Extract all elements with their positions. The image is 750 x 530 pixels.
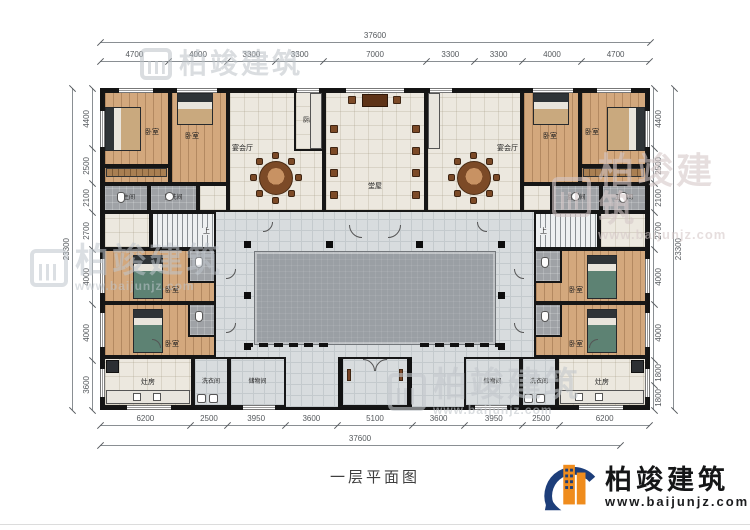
dim-segment: 3300 bbox=[276, 48, 324, 62]
dim-tick bbox=[68, 84, 75, 91]
dim-value: 3300 bbox=[291, 51, 309, 59]
dim-segment: 6200 bbox=[100, 412, 191, 426]
window bbox=[533, 88, 573, 93]
room-label-bedroom: 卧室 bbox=[569, 287, 583, 294]
dim-left-total: 23300 bbox=[59, 88, 73, 410]
bed bbox=[133, 255, 163, 299]
company-name: 柏竣建筑 bbox=[605, 467, 749, 494]
dim-segment: 2500 bbox=[523, 412, 560, 426]
kitchen-counter bbox=[310, 93, 322, 149]
window bbox=[100, 369, 105, 397]
dim-value: 3300 bbox=[441, 51, 459, 59]
room-storage-right: 储物间 bbox=[464, 357, 521, 407]
window bbox=[100, 259, 105, 293]
column bbox=[498, 343, 505, 350]
sheet-edge-line bbox=[0, 524, 750, 525]
dim-segment: 3950 bbox=[227, 412, 285, 426]
toilet bbox=[117, 192, 125, 203]
room-label-bedroom: 卧室 bbox=[185, 133, 199, 140]
room-label-main-hall: 堂屋 bbox=[368, 183, 382, 190]
room-label-storage: 储物间 bbox=[248, 379, 266, 385]
dim-value: 37600 bbox=[364, 32, 386, 40]
dim-value: 3600 bbox=[430, 415, 448, 423]
dim-value: 4000 bbox=[82, 267, 92, 287]
dim-value: 2500 bbox=[82, 156, 92, 176]
chair bbox=[412, 169, 420, 177]
dim-value: 3600 bbox=[302, 415, 320, 423]
dim-tick bbox=[646, 57, 653, 64]
dim-segment: 7000 bbox=[324, 48, 426, 62]
room-label-laundry: 洗衣间 bbox=[530, 379, 548, 385]
column bbox=[498, 292, 505, 299]
dim-value: 2500 bbox=[532, 415, 550, 423]
dim-segment: 2500 bbox=[191, 412, 228, 426]
dim-value: 7000 bbox=[366, 51, 384, 59]
toilet bbox=[195, 257, 203, 268]
dim-value: 4700 bbox=[125, 51, 143, 59]
dim-segment: 3950 bbox=[465, 412, 523, 426]
dim-segment: 3600 bbox=[79, 360, 93, 410]
dim-segment: 4000 bbox=[79, 250, 93, 305]
window bbox=[597, 88, 631, 93]
room-landing-right bbox=[599, 212, 647, 249]
stairs-up-label: 上 bbox=[202, 228, 211, 235]
room-main-hall bbox=[324, 91, 426, 212]
dim-value: 2700 bbox=[654, 221, 664, 241]
dim-segment: 2500 bbox=[79, 149, 93, 184]
bed bbox=[105, 107, 141, 151]
dim-value: 4000 bbox=[543, 51, 561, 59]
chair bbox=[412, 147, 420, 155]
bed bbox=[177, 93, 213, 125]
dim-segment: 37600 bbox=[100, 29, 650, 43]
dim-tick bbox=[670, 406, 677, 413]
dim-tick bbox=[616, 441, 623, 448]
dim-value: 4400 bbox=[82, 109, 92, 129]
appliance bbox=[133, 393, 141, 401]
dim-value: 3300 bbox=[243, 51, 261, 59]
door-arc bbox=[375, 212, 401, 238]
dim-segment: 5100 bbox=[338, 412, 413, 426]
bed bbox=[607, 107, 645, 151]
courtyard bbox=[254, 251, 496, 345]
window bbox=[475, 405, 507, 410]
company-url: www.baijunjz.com bbox=[605, 494, 749, 510]
dim-value: 2100 bbox=[654, 188, 664, 208]
chair bbox=[330, 125, 338, 133]
dim-value: 2100 bbox=[82, 188, 92, 208]
kitchen-counter bbox=[106, 390, 190, 404]
dim-value: 1800 bbox=[654, 388, 664, 408]
toilet bbox=[195, 311, 203, 322]
stove bbox=[106, 360, 119, 373]
dim-tick bbox=[96, 57, 103, 64]
toilet bbox=[541, 257, 549, 268]
floor-plan-sheet: 37600 4700400033003300700033003300400047… bbox=[0, 0, 750, 530]
chair bbox=[412, 191, 420, 199]
door-arc bbox=[253, 212, 273, 232]
sink bbox=[165, 192, 174, 201]
dim-value: 3300 bbox=[490, 51, 508, 59]
dim-tick bbox=[88, 406, 95, 413]
dim-value: 3950 bbox=[485, 415, 503, 423]
room-label-bedroom: 卧室 bbox=[569, 341, 583, 348]
dim-segment: 2700 bbox=[79, 212, 93, 249]
washing-machine bbox=[209, 394, 218, 403]
window bbox=[177, 88, 217, 93]
dim-value: 2700 bbox=[82, 221, 92, 241]
dim-tick bbox=[88, 145, 95, 152]
appliance bbox=[575, 393, 583, 401]
dim-value: 37600 bbox=[349, 435, 371, 443]
room-label-storage: 储物间 bbox=[483, 379, 501, 385]
dim-segment: 4000 bbox=[79, 305, 93, 360]
chair bbox=[330, 147, 338, 155]
door-arc bbox=[349, 212, 375, 238]
dim-tick bbox=[88, 84, 95, 91]
washing-machine bbox=[197, 394, 206, 403]
drawing-title: 一层平面图 bbox=[270, 466, 480, 487]
column bbox=[244, 292, 251, 299]
round-dining-table bbox=[448, 152, 500, 204]
room-landing-left bbox=[103, 212, 151, 249]
altar-table bbox=[362, 94, 388, 107]
dim-tick bbox=[646, 38, 653, 45]
chair bbox=[412, 125, 420, 133]
toilet bbox=[619, 192, 627, 203]
stove bbox=[631, 360, 644, 373]
room-storage-left: 储物间 bbox=[229, 357, 286, 407]
dim-value: 23300 bbox=[62, 237, 72, 261]
dim-bottom-segments: 620025003950360051003600395025006200 bbox=[100, 412, 650, 426]
bed bbox=[587, 255, 617, 299]
room-label-stove: 灶房 bbox=[595, 379, 609, 386]
dim-value: 6200 bbox=[136, 415, 154, 423]
dim-tick bbox=[96, 38, 103, 45]
dim-segment: 23300 bbox=[59, 88, 73, 410]
door-arc bbox=[514, 313, 534, 333]
room-label-bedroom: 卧室 bbox=[543, 133, 557, 140]
dim-value: 4400 bbox=[654, 109, 664, 129]
floor-plan: 衣帽间 卫生间 盥洗间 厨房 厨房 衣帽间 盥洗间 卫生间 bbox=[100, 88, 650, 410]
dim-segment: 1800 bbox=[653, 385, 667, 410]
window bbox=[100, 313, 105, 347]
door-arc bbox=[477, 212, 497, 232]
window bbox=[297, 88, 319, 93]
dim-segment: 3300 bbox=[474, 48, 522, 62]
sink bbox=[571, 192, 580, 201]
company-logo-icon bbox=[542, 459, 600, 517]
dim-segment: 3300 bbox=[227, 48, 275, 62]
dim-bottom-total: 37600 bbox=[100, 432, 620, 446]
window bbox=[119, 88, 153, 93]
appliance bbox=[595, 393, 603, 401]
wardrobe bbox=[106, 168, 167, 177]
dim-segment: 4000 bbox=[653, 250, 667, 305]
dim-segment: 4700 bbox=[581, 48, 650, 62]
dim-tick bbox=[68, 406, 75, 413]
column bbox=[498, 241, 505, 248]
stairs-up-label: 上 bbox=[539, 228, 548, 235]
window bbox=[645, 369, 650, 397]
dim-value: 1800 bbox=[654, 363, 664, 383]
washing-machine bbox=[524, 394, 533, 403]
dim-top-segments: 470040003300330070003300330040004700 bbox=[100, 48, 650, 62]
dim-value: 4700 bbox=[607, 51, 625, 59]
company-logo: 柏竣建筑 www.baijunjz.com bbox=[542, 450, 750, 526]
dim-segment: 4400 bbox=[653, 88, 667, 149]
stairs-right: 上 bbox=[534, 212, 599, 249]
dim-value: 2500 bbox=[200, 415, 218, 423]
dim-segment: 4000 bbox=[653, 305, 667, 360]
window bbox=[579, 405, 623, 410]
dim-segment: 6200 bbox=[559, 412, 650, 426]
room-label-bedroom: 卧室 bbox=[165, 341, 179, 348]
door-arc bbox=[216, 259, 236, 279]
dim-segment: 4000 bbox=[169, 48, 228, 62]
gate-post bbox=[347, 369, 351, 381]
chair bbox=[393, 96, 401, 104]
room-label-banquet: 宴会厅 bbox=[497, 145, 518, 152]
door-arc bbox=[216, 313, 236, 333]
dim-segment: 2100 bbox=[79, 183, 93, 212]
dim-tick bbox=[96, 421, 103, 428]
room-label-bedroom: 卧室 bbox=[165, 287, 179, 294]
dim-right-segments: 44002500210027004000400018001800 bbox=[653, 88, 667, 410]
column bbox=[416, 241, 423, 248]
chair bbox=[348, 96, 356, 104]
dim-tick bbox=[646, 421, 653, 428]
dim-value: 4000 bbox=[654, 323, 664, 343]
room-passage-left bbox=[198, 184, 228, 212]
dim-segment: 3600 bbox=[285, 412, 338, 426]
dim-value: 4000 bbox=[189, 51, 207, 59]
room-label-bedroom: 卧室 bbox=[585, 129, 599, 136]
washing-machine bbox=[536, 394, 545, 403]
dim-value: 4000 bbox=[82, 323, 92, 343]
dim-segment: 2500 bbox=[653, 149, 667, 184]
stairs-left: 上 bbox=[151, 212, 216, 249]
window bbox=[430, 88, 452, 93]
dim-tick bbox=[88, 301, 95, 308]
gate-post bbox=[399, 369, 403, 381]
window bbox=[645, 259, 650, 293]
dim-segment: 4000 bbox=[523, 48, 582, 62]
appliance bbox=[153, 393, 161, 401]
courtyard-low-wall-right bbox=[420, 343, 502, 347]
room-label-laundry: 洗衣间 bbox=[202, 379, 220, 385]
room-label-stove: 灶房 bbox=[141, 379, 155, 386]
window bbox=[127, 405, 171, 410]
dim-value: 4000 bbox=[654, 267, 664, 287]
window bbox=[243, 405, 275, 410]
dim-segment: 23300 bbox=[673, 88, 687, 410]
dim-top-total: 37600 bbox=[100, 29, 650, 43]
dim-value: 3950 bbox=[247, 415, 265, 423]
room-passage-right bbox=[522, 184, 552, 212]
dim-segment: 2100 bbox=[653, 183, 667, 212]
dim-segment: 3300 bbox=[426, 48, 474, 62]
courtyard-low-wall-left bbox=[244, 343, 330, 347]
dim-segment: 37600 bbox=[100, 432, 620, 446]
column bbox=[244, 241, 251, 248]
window bbox=[645, 313, 650, 347]
window bbox=[346, 88, 404, 93]
round-dining-table bbox=[250, 152, 302, 204]
dim-segment: 4400 bbox=[79, 88, 93, 149]
bed bbox=[533, 93, 569, 125]
dim-tick bbox=[670, 84, 677, 91]
window bbox=[645, 111, 650, 147]
wardrobe bbox=[583, 168, 644, 177]
dim-left-segments: 4400250021002700400040003600 bbox=[79, 88, 93, 410]
room-label-bedroom: 卧室 bbox=[145, 129, 159, 136]
dim-right-total: 23300 bbox=[673, 88, 687, 410]
window bbox=[100, 111, 105, 147]
dim-segment: 1800 bbox=[653, 360, 667, 385]
dim-value: 23300 bbox=[674, 237, 684, 261]
room-label-banquet: 宴会厅 bbox=[232, 145, 253, 152]
dim-tick bbox=[96, 441, 103, 448]
chair bbox=[330, 169, 338, 177]
toilet bbox=[541, 311, 549, 322]
door-arc bbox=[514, 259, 534, 279]
chair bbox=[330, 191, 338, 199]
dim-segment: 2700 bbox=[653, 212, 667, 249]
column bbox=[244, 343, 251, 350]
dim-value: 5100 bbox=[366, 415, 384, 423]
room-bathroom-left: 卫生间 bbox=[103, 184, 149, 212]
dim-segment: 4700 bbox=[100, 48, 169, 62]
dim-segment: 3600 bbox=[412, 412, 465, 426]
dim-value: 3600 bbox=[82, 375, 92, 395]
kitchen-counter bbox=[428, 93, 440, 149]
dim-tick bbox=[650, 84, 657, 91]
room-entrance bbox=[338, 357, 412, 407]
column bbox=[326, 241, 333, 248]
dim-value: 2500 bbox=[654, 156, 664, 176]
dim-value: 6200 bbox=[596, 415, 614, 423]
